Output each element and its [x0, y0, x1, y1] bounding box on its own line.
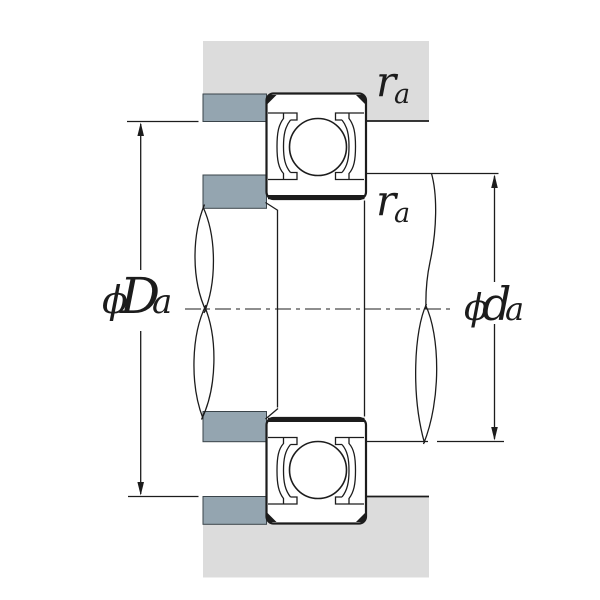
shaft-break-right: [416, 304, 427, 443]
arrow-up-icon: [137, 123, 144, 137]
shaft-break-left: [195, 205, 207, 313]
bearing-ball: [290, 119, 347, 176]
shaft-break-left: [203, 207, 213, 313]
label-phi-Da-sub: a: [152, 282, 172, 322]
label-phi-da: ϕ d a: [464, 277, 524, 331]
shaft-break-right: [424, 305, 437, 444]
label-ra-shaft-sub: a: [394, 198, 410, 229]
shaft-break-left: [194, 305, 206, 419]
bearing-diagram-svg: ϕ D a ϕ d a r a r a: [0, 0, 600, 600]
abutment-ring-housing-bottom: [203, 497, 267, 525]
label-phi-da-sub: a: [505, 290, 524, 328]
arrow-down-icon: [137, 482, 144, 496]
technical-drawing: ϕ D a ϕ d a r a r a: [0, 0, 600, 600]
label-ra-housing-sub: a: [394, 79, 410, 110]
shaft-chamfer-top: [266, 203, 279, 211]
abutment-ring-housing-top: [203, 94, 267, 122]
inner-ring-bore-band: [268, 195, 365, 199]
shaft-break-right: [426, 174, 436, 310]
shaft-break-left: [202, 306, 214, 420]
arrow-down-icon: [491, 427, 498, 441]
abutment-ring-shaft-top: [203, 175, 267, 208]
label-phi-Da: ϕ D a: [102, 267, 172, 325]
arrow-up-icon: [491, 175, 498, 189]
bearing-bottom: [267, 418, 367, 524]
abutment-ring-shaft-bottom: [203, 412, 267, 442]
dimension-left: ϕ D a: [102, 122, 199, 497]
label-ra-shaft: r a: [376, 176, 410, 229]
bearing-top: [267, 94, 367, 200]
dimension-right: ϕ d a: [464, 175, 524, 441]
